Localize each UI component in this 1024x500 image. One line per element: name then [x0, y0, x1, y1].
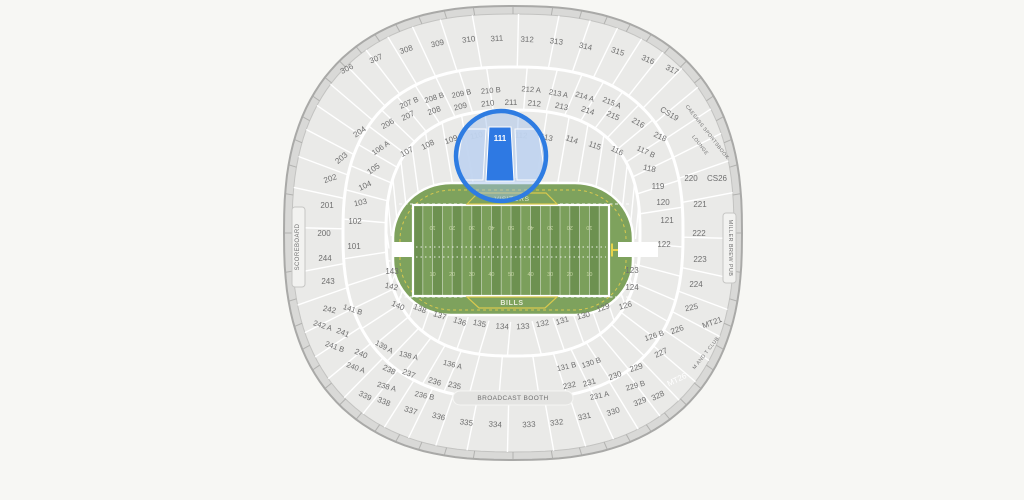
section-222[interactable]: 222 [692, 229, 706, 238]
yard-number: 10 [586, 224, 592, 230]
yard-number: 50 [508, 272, 514, 278]
tunnel-west [394, 242, 413, 257]
section-122[interactable]: 122 [657, 240, 671, 249]
section-143[interactable]: 143 [385, 267, 399, 276]
yard-number: 40 [528, 224, 534, 230]
section-335[interactable]: 335 [459, 417, 474, 428]
yard-number: 30 [547, 224, 553, 230]
yard-number: 40 [528, 272, 534, 278]
section-134[interactable]: 134 [495, 322, 509, 332]
yard-number: 40 [488, 272, 494, 278]
yard-number: 10 [430, 272, 436, 278]
section-313[interactable]: 313 [549, 36, 564, 47]
section-133[interactable]: 133 [516, 322, 530, 332]
section-123[interactable]: 123 [625, 266, 639, 275]
section-111-label[interactable]: 111 [494, 134, 507, 143]
yard-number: 20 [449, 272, 455, 278]
section-102[interactable]: 102 [348, 217, 362, 226]
section-101[interactable]: 101 [347, 242, 361, 251]
section-243[interactable]: 243 [321, 277, 335, 286]
venue-label-miller-brew-pub: MILLER BREW PUB [727, 220, 733, 277]
yard-number: 40 [488, 224, 494, 230]
yard-number: 20 [567, 272, 573, 278]
yard-number: 30 [469, 224, 475, 230]
section-224[interactable]: 224 [689, 280, 703, 289]
section-119[interactable]: 119 [652, 182, 665, 191]
section-334[interactable]: 334 [488, 420, 502, 430]
yard-number: 30 [547, 272, 553, 278]
venue-label-scoreboard: SCOREBOARD [295, 223, 301, 270]
section-124[interactable]: 124 [625, 283, 639, 292]
stadium-map[interactable]: 101020203030404050504040303020201010VISI… [0, 0, 1024, 500]
yard-number: 20 [449, 224, 455, 230]
seating-map-canvas[interactable]: 101020203030404050504040303020201010VISI… [0, 0, 1024, 500]
section-311[interactable]: 311 [490, 34, 504, 44]
section-244[interactable]: 244 [318, 254, 332, 263]
section-120[interactable]: 120 [656, 198, 670, 207]
section-212-a[interactable]: 212 A [521, 84, 542, 95]
yard-number: 50 [508, 224, 514, 230]
yard-number: 30 [469, 272, 475, 278]
section-201[interactable]: 201 [320, 201, 334, 210]
section-211[interactable]: 211 [505, 98, 518, 107]
section-cs26[interactable]: CS26 [707, 174, 728, 183]
tunnel-east [618, 242, 658, 257]
home-team-label: BILLS [500, 300, 523, 307]
magnifier: 111 [455, 111, 546, 201]
section-221[interactable]: 221 [693, 200, 707, 209]
yard-number: 10 [430, 224, 436, 230]
section-220[interactable]: 220 [684, 174, 698, 183]
football-field: 101020203030404050504040303020201010VISI… [393, 183, 658, 315]
section-223[interactable]: 223 [693, 255, 707, 264]
venue-label-broadcast-booth: BROADCAST BOOTH [477, 395, 548, 402]
yard-number: 20 [567, 224, 573, 230]
section-200[interactable]: 200 [317, 229, 331, 238]
section-333[interactable]: 333 [522, 420, 536, 430]
section-332[interactable]: 332 [549, 417, 564, 428]
section-312[interactable]: 312 [520, 35, 534, 45]
yard-number: 10 [586, 272, 592, 278]
section-121[interactable]: 121 [660, 216, 674, 225]
section-212[interactable]: 212 [527, 98, 542, 108]
section-310[interactable]: 310 [461, 34, 476, 45]
section-210-b[interactable]: 210 B [480, 85, 501, 96]
section-210[interactable]: 210 [481, 98, 496, 109]
